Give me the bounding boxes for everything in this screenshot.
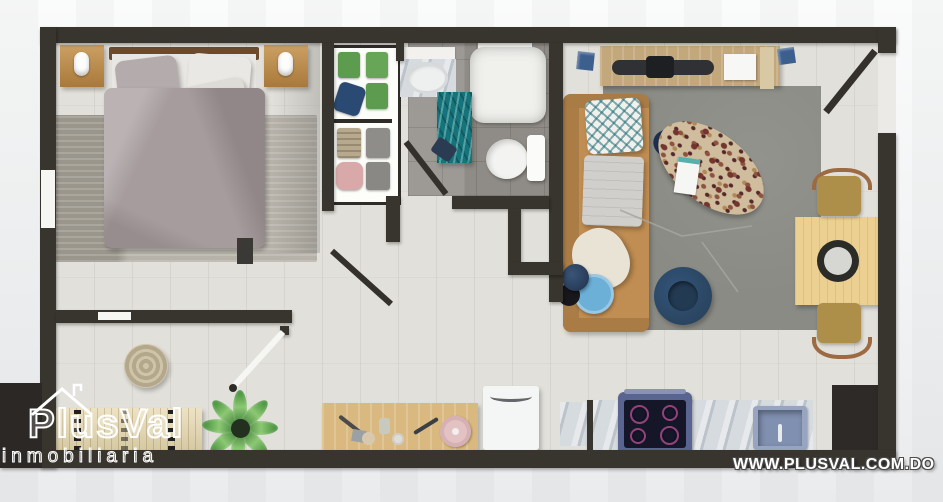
stove-handle: [624, 389, 686, 394]
woven-pouf: [124, 344, 168, 388]
wall-bath-stub: [396, 43, 404, 61]
pink-plate-center: [452, 428, 459, 435]
bed-foot-item: [237, 238, 253, 264]
floorplan-render: PlusVal inmobiliaria WWW.PLUSVAL.COM.DO: [0, 0, 943, 502]
marble-block-small: [560, 402, 587, 446]
folded-clothes-green-1: [338, 52, 360, 78]
shower: [470, 47, 546, 123]
lamp-shade-navy: [562, 264, 589, 291]
window-left: [41, 170, 55, 228]
lamp-left: [74, 52, 89, 76]
closet-shelf-divider: [334, 119, 392, 123]
wall-niche-vertical: [508, 209, 521, 262]
wall-top: [40, 27, 896, 43]
entry-threshold: [878, 53, 896, 133]
website-watermark: WWW.PLUSVAL.COM.DO: [733, 456, 935, 474]
chair-north-seat: [817, 176, 861, 216]
bath-shelf: [400, 47, 455, 59]
burner-4: [660, 426, 679, 445]
lamp-right: [278, 52, 293, 76]
tray-ring-inner: [824, 247, 852, 275]
logo-subtext: inmobiliaria: [2, 446, 158, 468]
bed-duvet: [104, 88, 265, 248]
sofa-pillow-patterned: [584, 97, 644, 155]
basket-gray-2: [366, 162, 390, 190]
wall-right-lower: [878, 133, 896, 468]
sofa-cushion-gray: [582, 155, 644, 227]
wall-right-upper: [878, 27, 896, 53]
wall-niche-horizontal: [508, 262, 563, 275]
tv-mount: [646, 56, 674, 78]
basket-gray-1: [366, 128, 390, 158]
folded-clothes-green-2: [366, 52, 388, 78]
white-door-hinge-block: [280, 326, 289, 335]
folded-clothes-green-3: [366, 83, 388, 109]
burner-2: [662, 405, 678, 421]
sofa-arm-bottom: [563, 318, 649, 332]
fridge-handle: [490, 391, 532, 402]
armchair-seat: [668, 281, 698, 311]
toilet-tank: [527, 135, 545, 181]
jar: [379, 418, 390, 434]
wall-art-blue-left: [576, 51, 595, 71]
burner-3: [630, 428, 646, 444]
wall-art-blue-right: [777, 47, 796, 65]
white-box-on-console: [724, 54, 756, 80]
wall-bedroom-south: [56, 310, 292, 323]
wall-bath-south: [452, 196, 549, 209]
tall-cabinet-dark: [832, 385, 878, 450]
plate-beige: [362, 432, 375, 445]
basket-tan: [337, 128, 361, 158]
faucet: [778, 424, 782, 442]
wall-closet-west: [322, 43, 334, 211]
logo-text: PlusVal: [28, 402, 184, 447]
plate-small: [392, 433, 404, 445]
window-bedroom-south: [98, 312, 131, 320]
burner-1: [630, 405, 649, 424]
wall-vestibule: [386, 196, 400, 242]
papers-beige: [760, 47, 774, 89]
vanity-sink: [406, 62, 448, 94]
pink-clothes: [336, 162, 363, 190]
plant-pot: [231, 419, 250, 438]
